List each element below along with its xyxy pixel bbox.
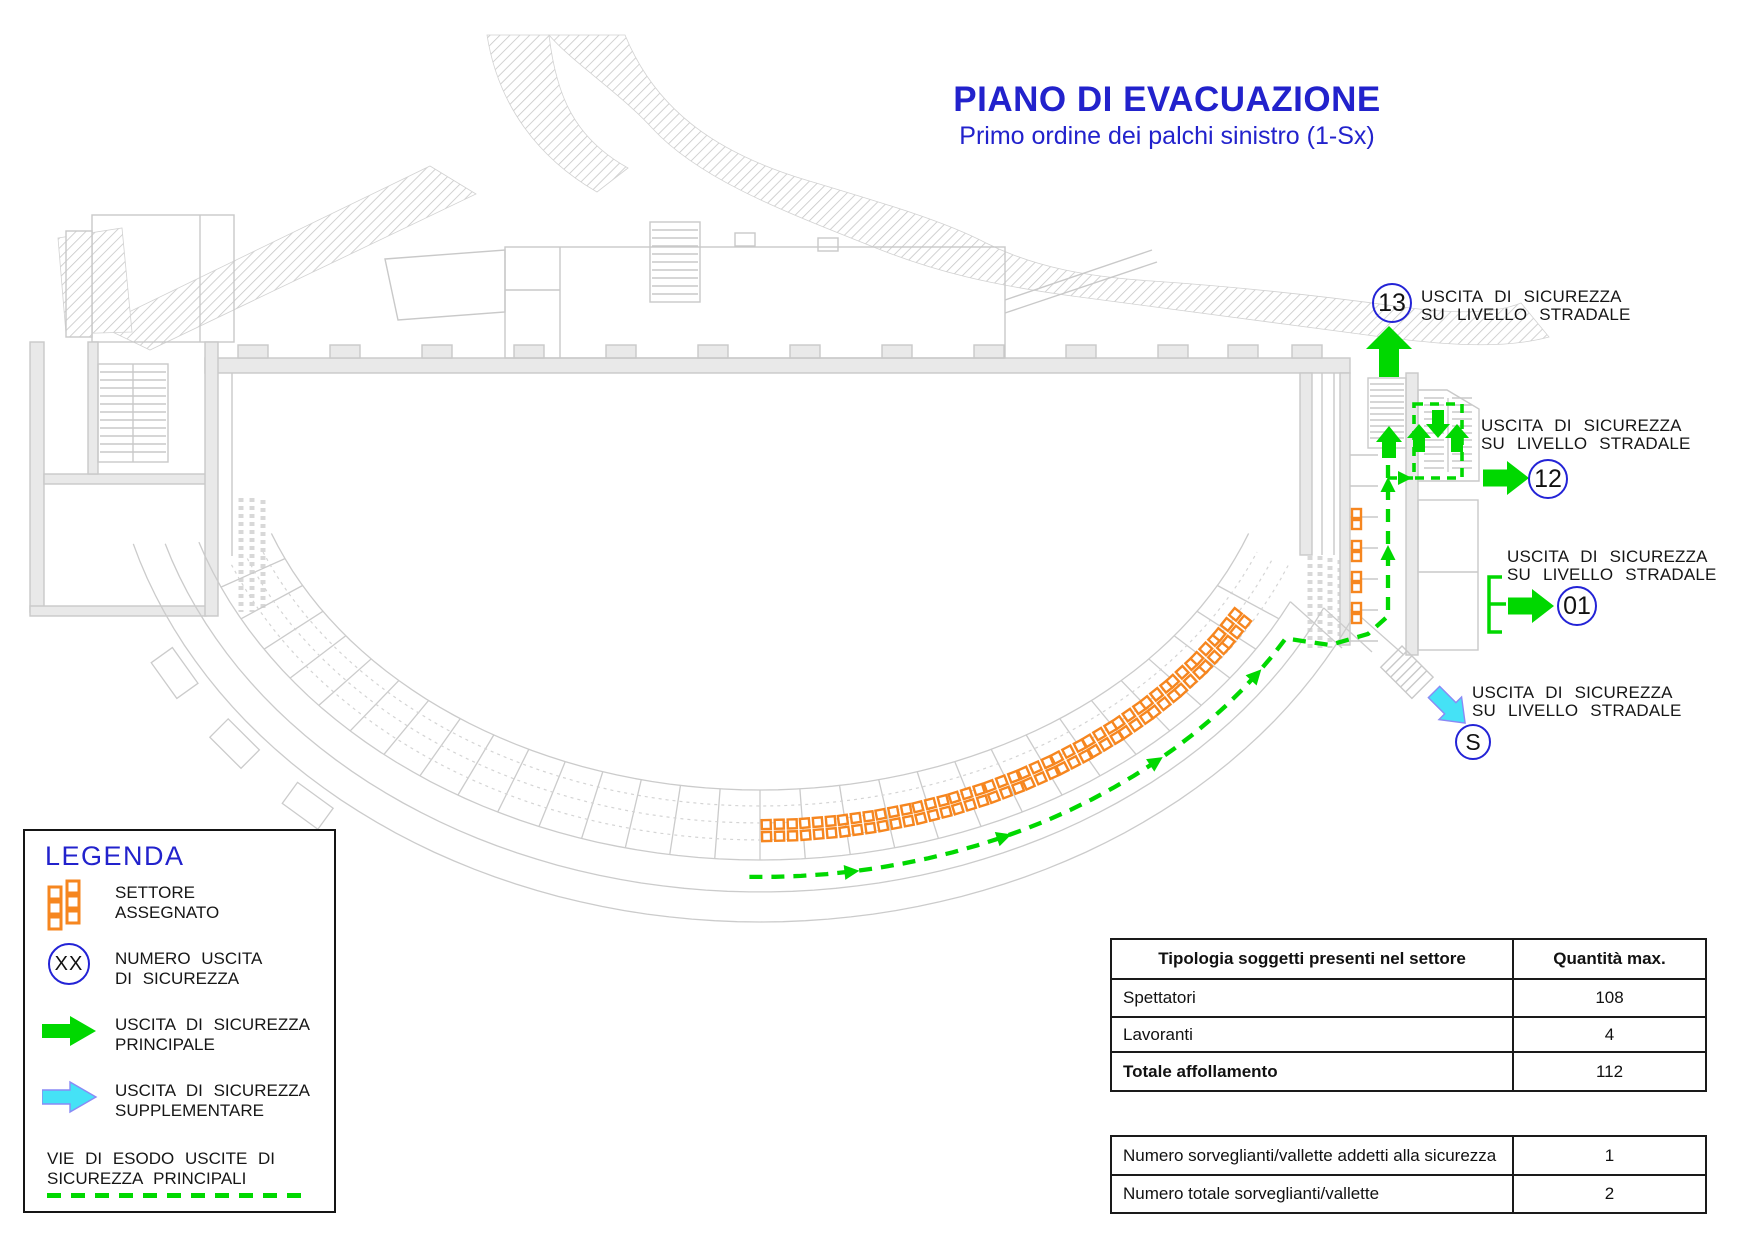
row-label: Lavoranti — [1111, 1017, 1513, 1052]
legend-title: LEGENDA — [45, 841, 185, 872]
exit-12-arrow-icon — [1483, 461, 1529, 495]
table-row: Spettatori108 — [1111, 979, 1706, 1017]
evacuation-plan-page: PIANO DI EVACUAZIONE Primo ordine dei pa… — [0, 0, 1755, 1241]
legend-item-label: USCITA DI SICUREZZASUPPLEMENTARE — [115, 1081, 310, 1121]
sector-cluster — [984, 771, 1024, 803]
sector-cluster — [800, 816, 837, 840]
legend-item-label: NUMERO USCITADI SICUREZZA — [115, 949, 262, 989]
table-row: Numero totale sorveglianti/vallette2 — [1111, 1175, 1706, 1213]
escape-route-dashed — [749, 438, 1395, 880]
row-label: Spettatori — [1111, 979, 1513, 1017]
table-header-tipologia: Tipologia soggetti presenti nel settore — [1111, 939, 1513, 979]
legend-item-label: USCITA DI SICUREZZAPRINCIPALE — [115, 1015, 310, 1055]
exit-13-badge: 13 — [1372, 283, 1412, 323]
row-value: 1 — [1513, 1136, 1706, 1175]
row-label: Totale affollamento — [1111, 1052, 1513, 1091]
exit-s-caption: USCITA DI SICUREZZA SU LIVELLO STRADALE — [1472, 684, 1682, 719]
exit-13-number: 13 — [1378, 289, 1406, 318]
table-header-quantita: Quantità max. — [1513, 939, 1706, 979]
row-label: Numero sorveglianti/vallette addetti all… — [1111, 1136, 1513, 1175]
page-title: PIANO DI EVACUAZIONE — [947, 80, 1387, 120]
legend-box: LEGENDA SETTOREASSEGNATOXXNUMERO USCITAD… — [23, 829, 336, 1213]
exit-01-number: 01 — [1563, 592, 1591, 621]
staff-table: Numero sorveglianti/vallette addetti all… — [1110, 1135, 1707, 1214]
green-dashed-line-icon — [47, 1193, 302, 1198]
exit-13-caption: USCITA DI SICUREZZA SU LIVELLO STRADALE — [1421, 288, 1631, 323]
sector-seats-icon — [45, 877, 99, 936]
exit-01-badge: 01 — [1557, 586, 1597, 626]
table-row: Lavoranti4 — [1111, 1017, 1706, 1052]
exit-12-number: 12 — [1534, 465, 1562, 494]
exit-s-letter: S — [1465, 729, 1480, 756]
row-label: Numero totale sorveglianti/vallette — [1111, 1175, 1513, 1213]
sector-cluster — [912, 795, 951, 824]
occupancy-table: Tipologia soggetti presenti nel settore … — [1110, 938, 1707, 1092]
legend-item-label: SETTOREASSEGNATO — [115, 883, 219, 923]
table-row: Totale affollamento112 — [1111, 1052, 1706, 1091]
exit-number-circle-icon: XX — [48, 943, 90, 985]
row-value: 108 — [1513, 979, 1706, 1017]
sector-cluster — [875, 804, 913, 831]
exit-01-caption: USCITA DI SICUREZZA SU LIVELLO STRADALE — [1507, 548, 1717, 583]
row-value: 4 — [1513, 1017, 1706, 1052]
exit-01-arrow-icon — [1508, 589, 1554, 623]
exit-12-badge: 12 — [1528, 459, 1568, 499]
page-subtitle: Primo ordine dei palchi sinistro (1-Sx) — [947, 122, 1387, 151]
exit-12-caption: USCITA DI SICUREZZA SU LIVELLO STRADALE — [1481, 417, 1691, 452]
table-row: Numero sorveglianti/vallette addetti all… — [1111, 1136, 1706, 1175]
cyan-arrow-icon — [42, 1079, 98, 1120]
row-value: 112 — [1513, 1052, 1706, 1091]
green-arrow-icon — [42, 1013, 98, 1054]
sector-cluster — [949, 784, 989, 815]
row-value: 2 — [1513, 1175, 1706, 1213]
sector-cluster — [838, 811, 876, 837]
assigned-sector-markers — [762, 509, 1361, 841]
legend-item-label: VIE DI ESODO USCITE DISICUREZZA PRINCIPA… — [47, 1149, 275, 1189]
exit-s-badge: S — [1455, 724, 1491, 760]
exit-01-bracket — [1489, 577, 1506, 632]
sector-cluster — [762, 819, 798, 841]
